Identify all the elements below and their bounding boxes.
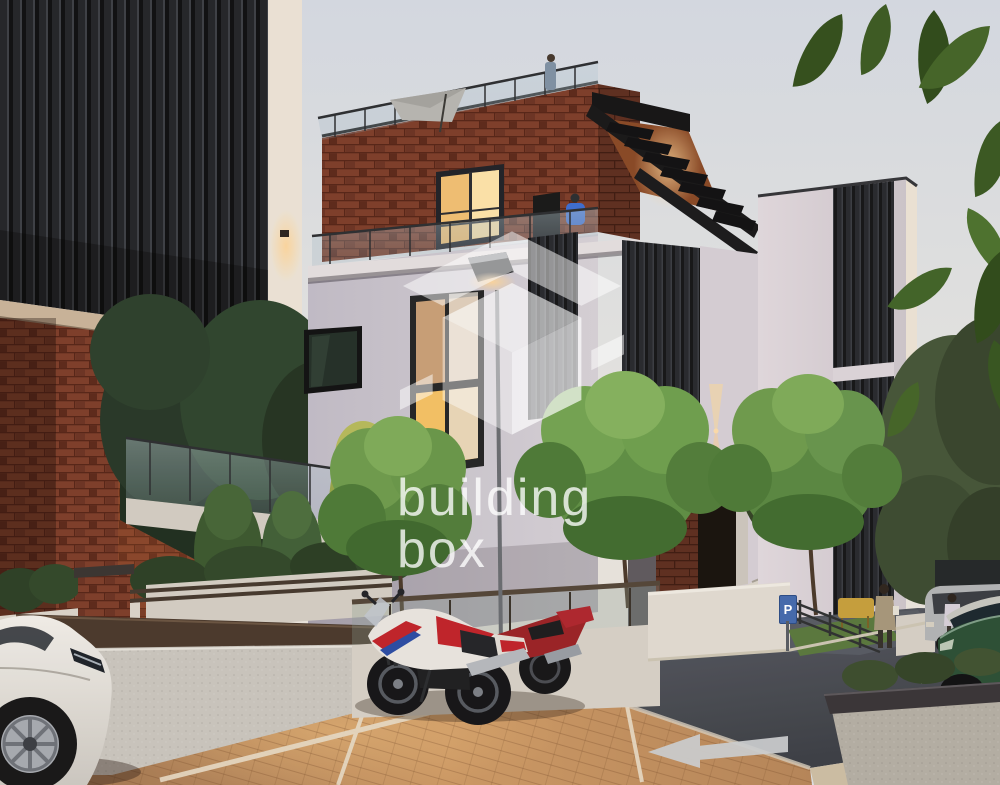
atmosphere-overlay bbox=[0, 0, 1000, 785]
parking-sign-pole bbox=[786, 621, 789, 651]
parking-sign: P bbox=[779, 595, 797, 624]
scene-svg bbox=[0, 0, 1000, 785]
architectural-render-image: P building box bbox=[0, 0, 1000, 785]
